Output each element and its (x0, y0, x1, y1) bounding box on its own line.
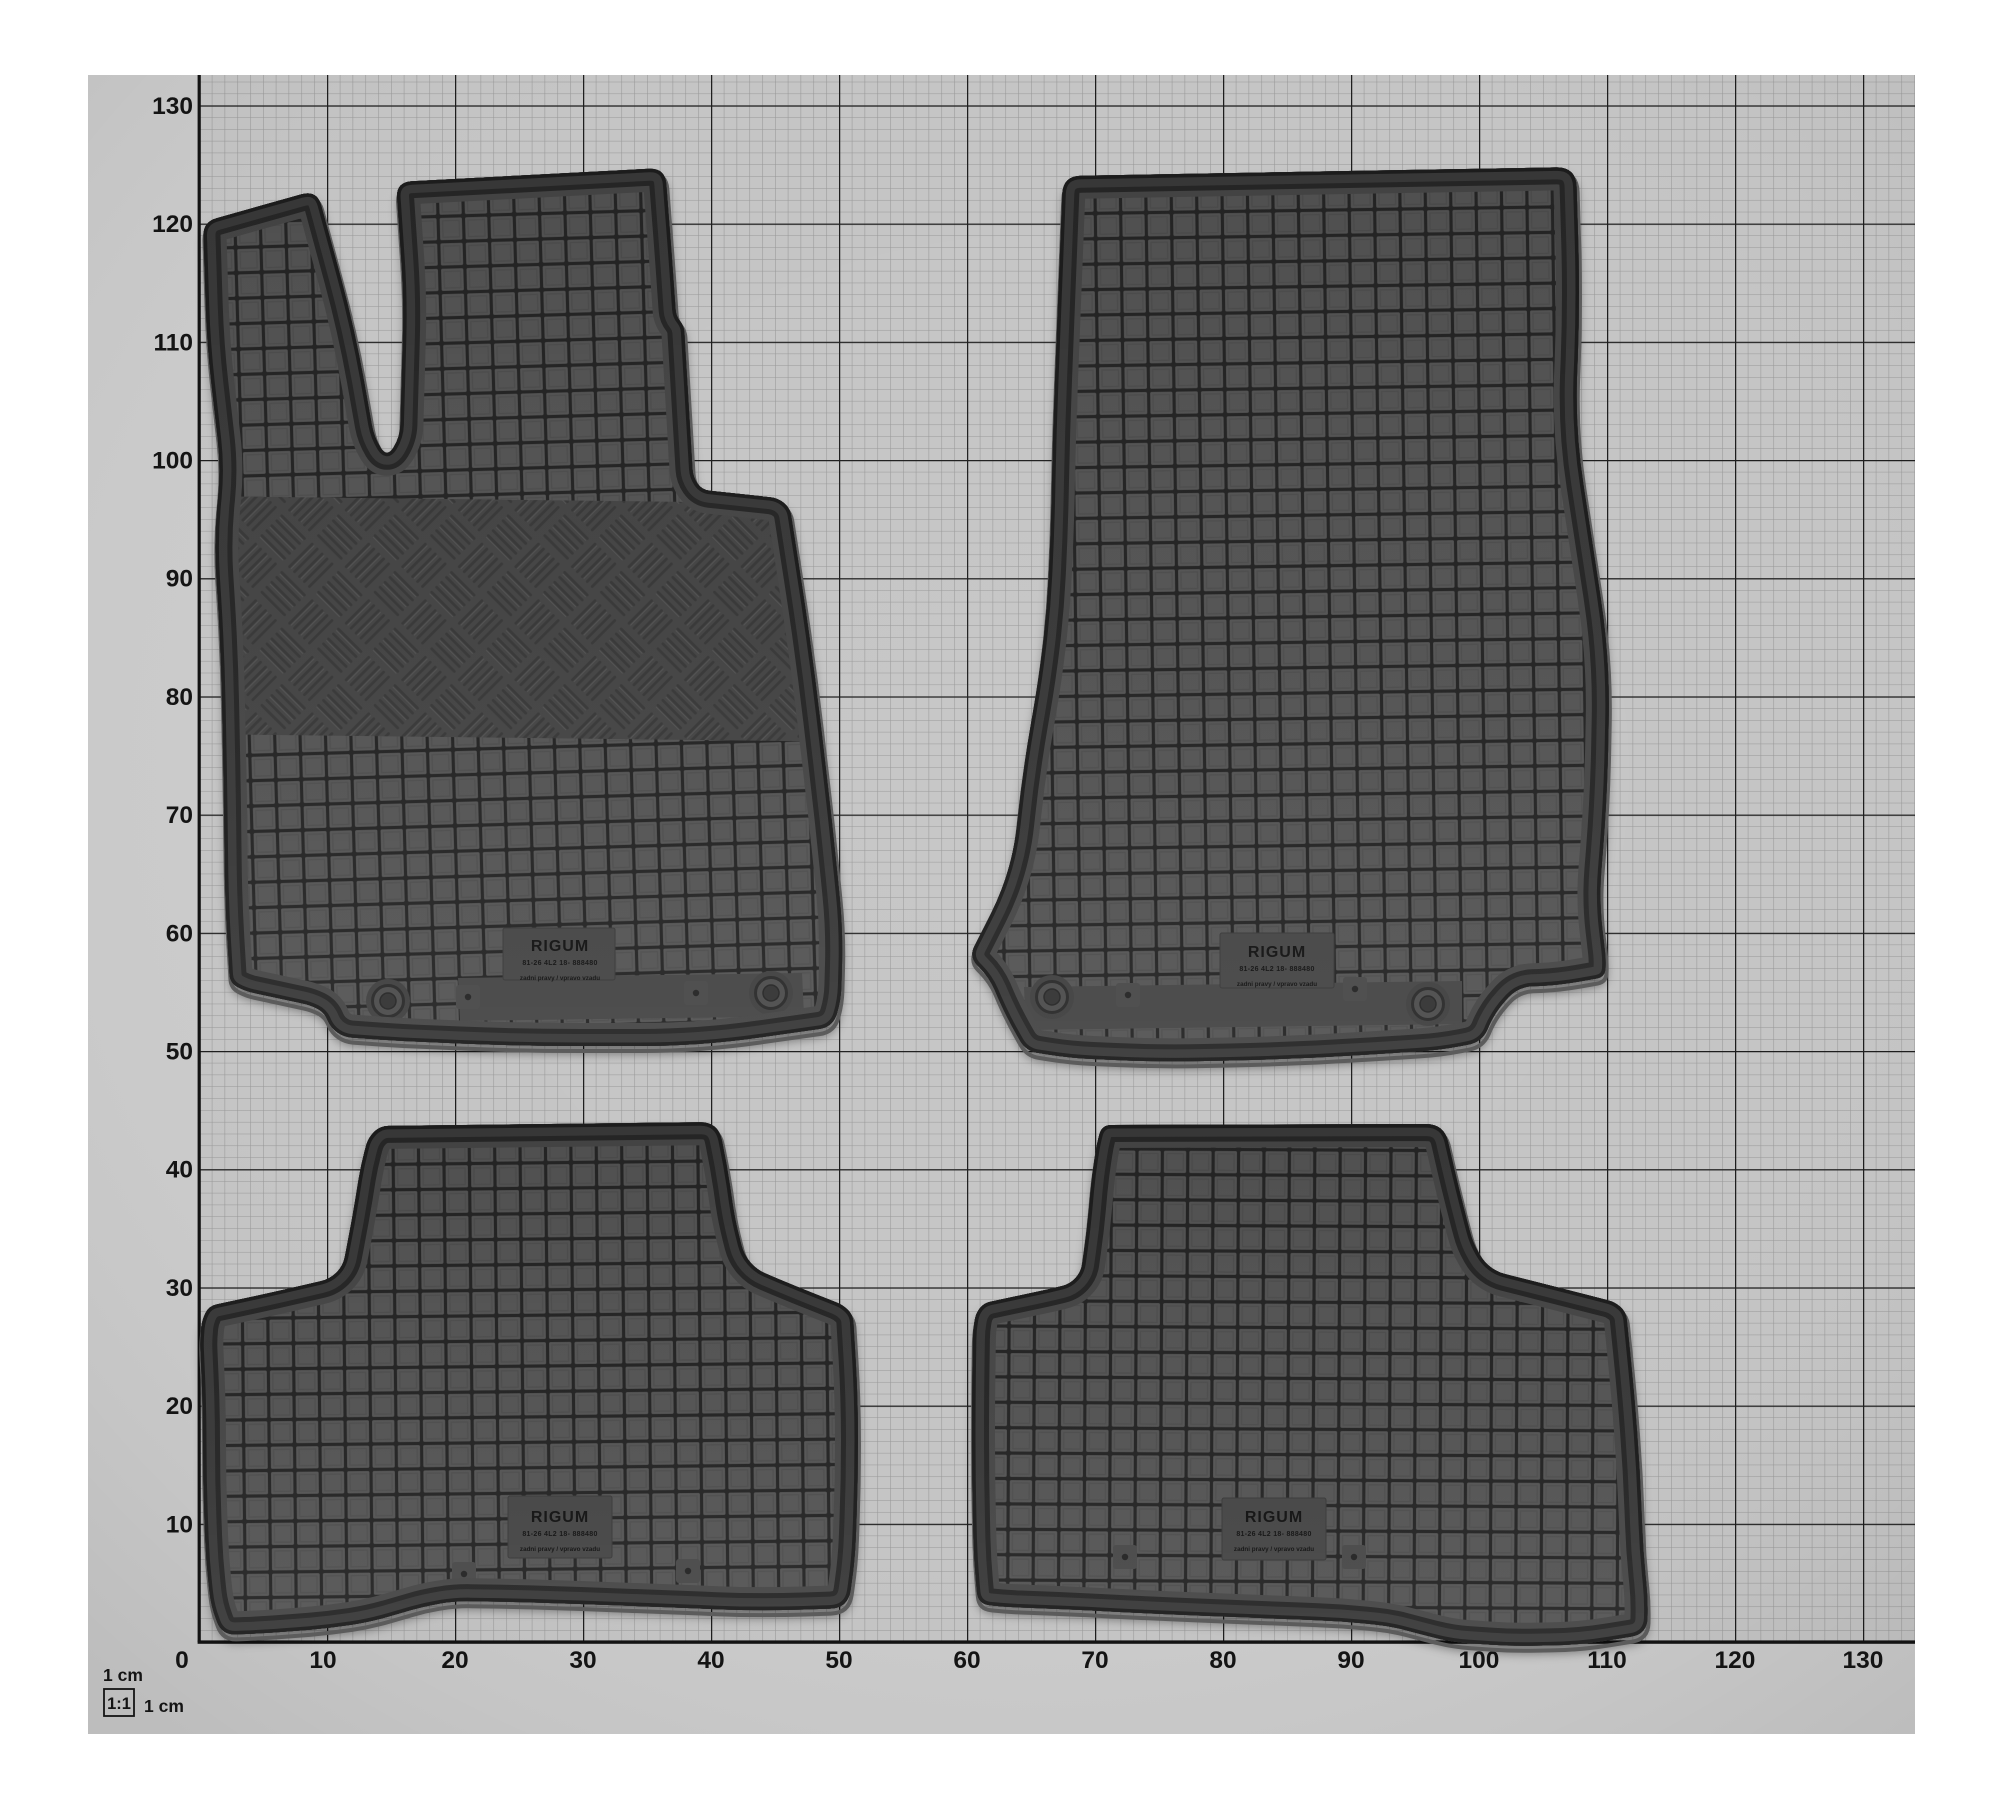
svg-text:100: 100 (152, 448, 193, 475)
svg-text:1:1: 1:1 (107, 1695, 131, 1713)
svg-text:30: 30 (569, 1647, 596, 1674)
svg-text:1 cm: 1 cm (144, 1696, 184, 1716)
svg-text:130: 130 (1843, 1647, 1884, 1674)
svg-text:130: 130 (152, 93, 193, 120)
svg-text:80: 80 (166, 684, 193, 711)
svg-text:10: 10 (309, 1647, 336, 1674)
svg-text:10: 10 (166, 1511, 193, 1538)
svg-text:20: 20 (166, 1393, 193, 1420)
svg-text:120: 120 (152, 211, 193, 238)
svg-text:110: 110 (1587, 1647, 1627, 1674)
svg-text:80: 80 (1209, 1647, 1236, 1674)
svg-text:60: 60 (953, 1647, 980, 1674)
svg-text:30: 30 (166, 1275, 193, 1302)
svg-text:90: 90 (1337, 1647, 1364, 1674)
svg-text:110: 110 (153, 329, 193, 356)
svg-text:60: 60 (166, 920, 193, 947)
svg-text:1 cm: 1 cm (103, 1665, 143, 1685)
svg-text:20: 20 (441, 1647, 468, 1674)
svg-text:70: 70 (1081, 1647, 1108, 1674)
svg-text:50: 50 (166, 1039, 193, 1066)
svg-text:70: 70 (166, 802, 193, 829)
svg-text:40: 40 (166, 1157, 193, 1184)
svg-text:90: 90 (166, 566, 193, 593)
svg-text:40: 40 (697, 1647, 724, 1674)
svg-text:0: 0 (175, 1647, 189, 1674)
svg-text:120: 120 (1715, 1647, 1756, 1674)
svg-text:50: 50 (825, 1647, 852, 1674)
